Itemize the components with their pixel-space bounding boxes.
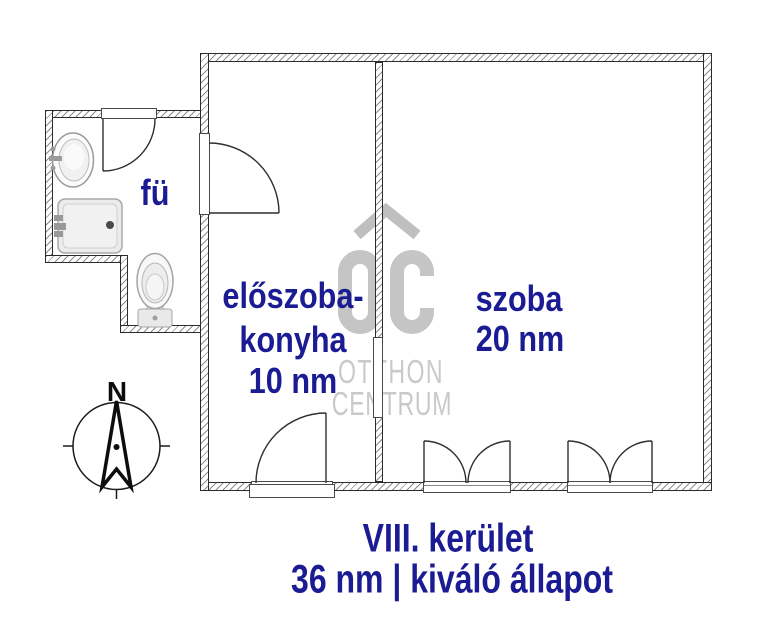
roof-chevron-icon	[357, 210, 417, 235]
shower-tray-fixture	[54, 199, 122, 253]
window-2-frame-line	[568, 485, 652, 486]
north-arrow-icon	[102, 401, 131, 487]
toilet-fixture	[137, 254, 173, 328]
window-1-frame-line	[424, 485, 510, 486]
bath-entry-door-arc	[103, 119, 155, 171]
interior-passage-opening	[373, 337, 383, 418]
floor-plan-canvas: OTTHON CENTRUM	[0, 0, 781, 628]
window-1-left-arc	[424, 441, 466, 483]
shower-tap-icon	[54, 215, 63, 221]
room-label: szoba	[476, 278, 563, 320]
sink-fixture	[49, 133, 94, 187]
wall-bath-bottom-lower	[120, 325, 201, 333]
watermark-centrum: CENTRUM	[332, 385, 452, 423]
compass-north-label: N	[107, 376, 127, 408]
footer-district: VIII. kerület	[363, 517, 534, 562]
hall-kitchen-label-line2: konyha	[239, 319, 346, 361]
wall-bath-left-lower	[120, 255, 128, 333]
wall-main-left	[200, 53, 209, 491]
wall-bath-left	[45, 110, 53, 263]
balcony-door-sill	[249, 484, 335, 498]
logo-letter-c	[397, 257, 427, 327]
wall-bath-bottom-upper	[45, 255, 128, 263]
compass	[63, 401, 170, 499]
bathroom-label: fü	[141, 172, 170, 214]
window-2	[567, 481, 653, 493]
bathroom-entry-opening	[101, 108, 157, 119]
window-2-right-arc	[610, 441, 652, 483]
wall-main-right	[703, 53, 712, 491]
window-1-right-arc	[468, 441, 510, 483]
hall-kitchen-area-label: 10 nm	[249, 360, 337, 402]
balcony-door-arc	[256, 413, 326, 483]
window-2-left-arc	[568, 441, 610, 483]
window-1	[423, 481, 511, 493]
hall-kitchen-label-line1: előszoba-	[222, 275, 363, 317]
room-area-label: 20 nm	[476, 318, 564, 360]
footer-details: 36 nm | kiváló állapot	[291, 558, 613, 603]
shower-drain-icon	[106, 221, 114, 229]
hall-door-arc	[209, 143, 279, 213]
logo-letter-c-gap	[417, 276, 441, 308]
hall-door-opening	[199, 133, 210, 215]
wall-interior	[375, 62, 383, 482]
wall-main-top	[200, 53, 712, 62]
compass-center-dot	[114, 444, 120, 450]
